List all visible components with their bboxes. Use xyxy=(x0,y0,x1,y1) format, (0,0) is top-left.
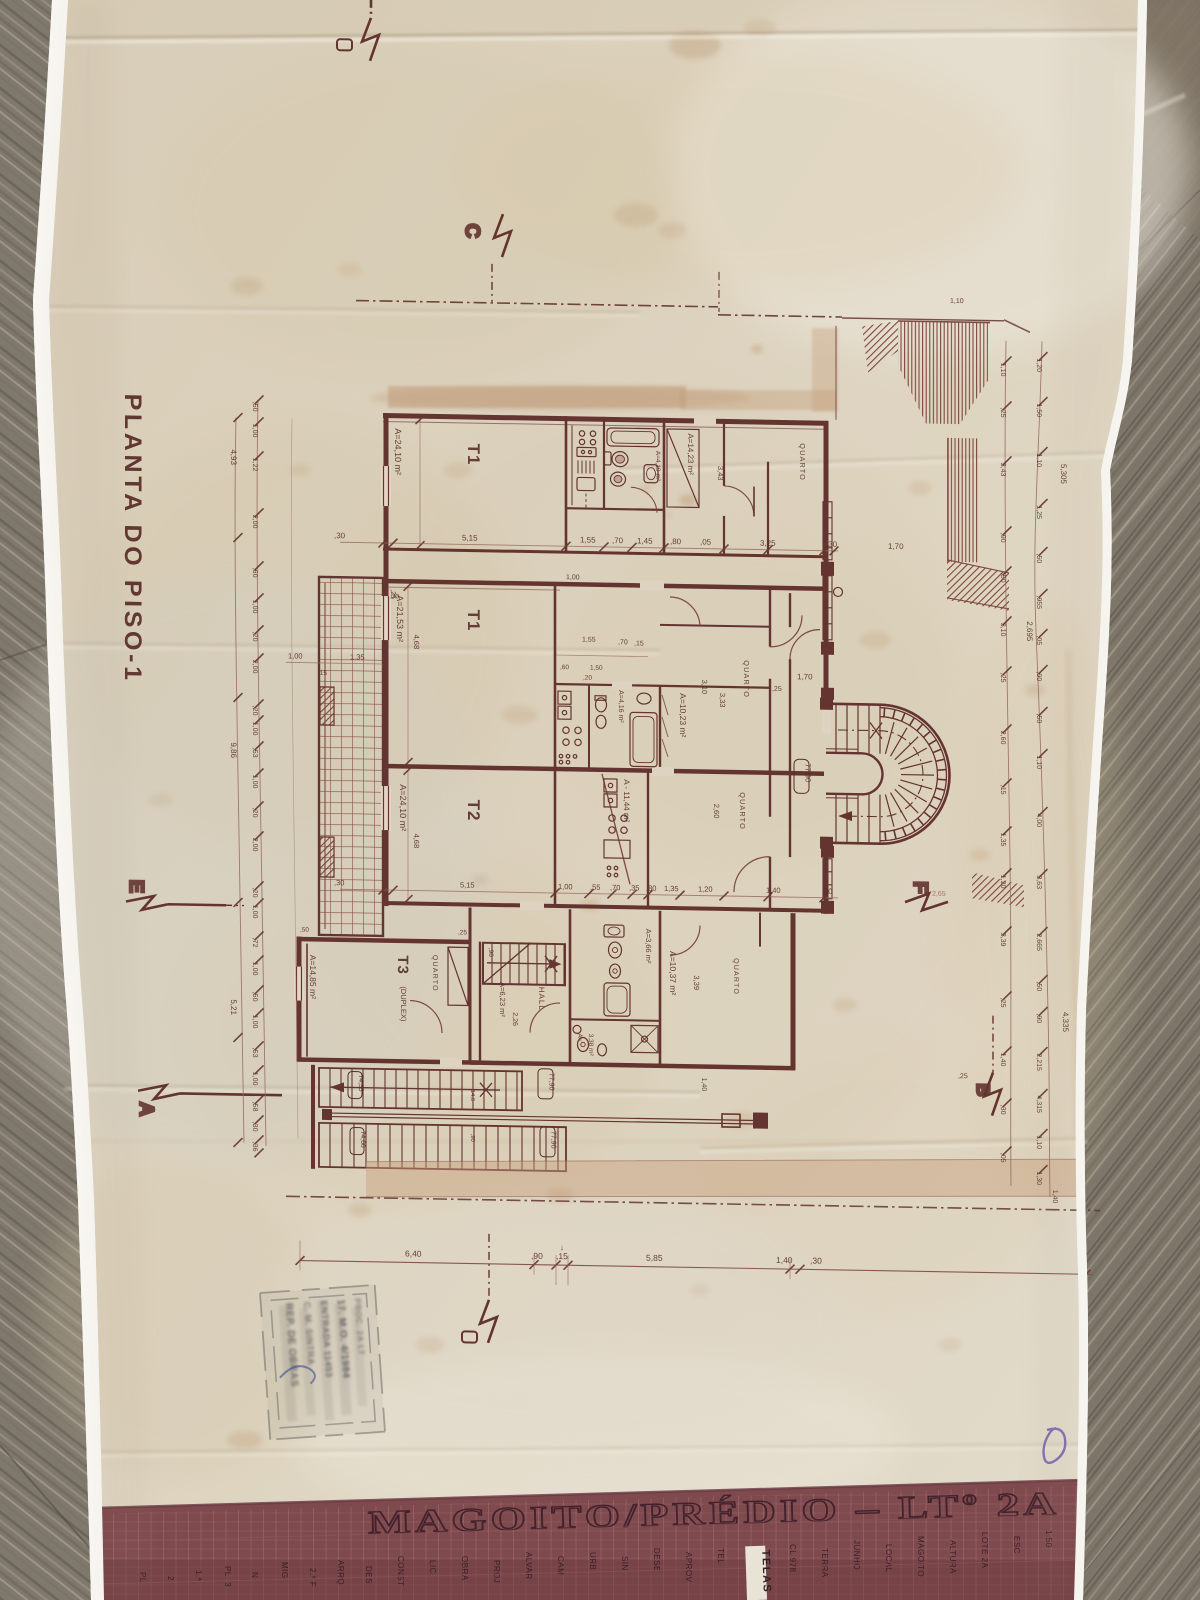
svg-text:4,68: 4,68 xyxy=(412,834,421,849)
svg-text:1,40: 1,40 xyxy=(700,1078,707,1092)
svg-text:QUARTO: QUARTO xyxy=(732,958,739,995)
svg-text:ALVAR: ALVAR xyxy=(524,1552,533,1580)
svg-text:A=14,23 m²: A=14,23 m² xyxy=(686,433,695,475)
svg-text:1,10: 1,10 xyxy=(950,298,964,305)
svg-text:CL 978: CL 978 xyxy=(788,1544,797,1573)
svg-text:1,00: 1,00 xyxy=(288,651,303,660)
svg-text:APROV: APROV xyxy=(684,1552,693,1583)
svg-text:A - 11,44 m²: A - 11,44 m² xyxy=(622,779,631,822)
svg-text:HALL: HALL xyxy=(537,987,546,1011)
svg-text:1,00: 1,00 xyxy=(251,775,258,789)
svg-text:,25: ,25 xyxy=(772,686,782,693)
svg-text:,35: ,35 xyxy=(629,883,639,892)
svg-text:,55: ,55 xyxy=(590,883,600,892)
svg-text:1,20: 1,20 xyxy=(1035,358,1042,372)
svg-text:,30: ,30 xyxy=(334,878,344,887)
svg-text:,53: ,53 xyxy=(251,748,258,758)
svg-text:,80: ,80 xyxy=(646,884,656,893)
svg-text:T1: T1 xyxy=(464,443,483,465)
svg-text:CONST: CONST xyxy=(396,1556,405,1587)
svg-text:2,00: 2,00 xyxy=(251,660,258,674)
svg-text:1,10: 1,10 xyxy=(1035,453,1042,467)
svg-text:TELAS: TELAS xyxy=(759,1549,773,1593)
svg-text:2,00: 2,00 xyxy=(251,838,258,852)
svg-text:A=24,10 m²: A=24,10 m² xyxy=(398,784,408,831)
svg-text:,30: ,30 xyxy=(999,1105,1006,1115)
svg-text:,70: ,70 xyxy=(618,639,628,646)
svg-text:14,6: 14,6 xyxy=(469,1090,475,1102)
svg-text:A=24,10 m²: A=24,10 m² xyxy=(393,428,403,475)
svg-text:2,65: 2,65 xyxy=(932,891,946,898)
svg-text:3,25: 3,25 xyxy=(760,539,776,548)
svg-text:LOCAL: LOCAL xyxy=(884,1544,893,1573)
svg-text:3,10: 3,10 xyxy=(999,623,1006,637)
svg-text:(DUPLEX): (DUPLEX) xyxy=(399,986,408,1022)
svg-text:A=6,23 m²: A=6,23 m² xyxy=(498,982,507,1017)
svg-text:2,00: 2,00 xyxy=(251,515,258,529)
svg-text:77,90: 77,90 xyxy=(550,1131,557,1149)
svg-text:DESE: DESE xyxy=(652,1548,661,1572)
svg-text:,30: ,30 xyxy=(826,540,838,549)
svg-text:QUARTO: QUARTO xyxy=(798,443,807,481)
svg-text:1,00: 1,00 xyxy=(251,1072,258,1086)
svg-text:,15: ,15 xyxy=(999,785,1006,795)
svg-text:1,70: 1,70 xyxy=(888,542,904,551)
svg-text:MIG: MIG xyxy=(280,1562,289,1579)
svg-text:2,665: 2,665 xyxy=(1035,933,1042,951)
svg-text:1,22: 1,22 xyxy=(251,458,258,472)
svg-text:DES: DES xyxy=(364,1566,373,1584)
svg-text:1,00: 1,00 xyxy=(566,574,580,581)
svg-text:4,93: 4,93 xyxy=(229,449,238,465)
svg-text:1,35: 1,35 xyxy=(999,833,1006,847)
svg-text:ALTURA: ALTURA xyxy=(948,1540,957,1574)
svg-text:A=10,23 m²: A=10,23 m² xyxy=(678,693,688,738)
svg-text:3,43: 3,43 xyxy=(999,463,1006,477)
svg-text:,30: ,30 xyxy=(822,887,832,896)
svg-text:,30: ,30 xyxy=(810,1255,822,1265)
svg-text:1,40: 1,40 xyxy=(766,886,781,895)
svg-text:1,00: 1,00 xyxy=(251,905,258,919)
svg-text:ESC: ESC xyxy=(1012,1536,1021,1554)
svg-text:,25: ,25 xyxy=(458,929,467,936)
svg-text:,50: ,50 xyxy=(1035,553,1042,563)
svg-text:,15: ,15 xyxy=(318,670,327,677)
svg-text:PL. 3: PL. 3 xyxy=(223,1566,232,1587)
svg-text:2,695: 2,695 xyxy=(1025,621,1034,642)
svg-text:A=21,53 m²: A=21,53 m² xyxy=(395,595,405,642)
svg-text:,50: ,50 xyxy=(999,573,1006,583)
svg-text:A=4,16 m²: A=4,16 m² xyxy=(617,690,624,723)
svg-text:1,45: 1,45 xyxy=(637,536,653,545)
svg-text:,60: ,60 xyxy=(560,664,569,671)
svg-text:MAGOITO: MAGOITO xyxy=(916,1536,925,1577)
svg-text:ARRQ: ARRQ xyxy=(336,1560,345,1585)
svg-text:,15: ,15 xyxy=(634,640,644,647)
svg-text:,90: ,90 xyxy=(487,948,494,958)
svg-text:1,55: 1,55 xyxy=(580,535,596,544)
svg-text:3,63: 3,63 xyxy=(1035,875,1042,889)
svg-text:1,50: 1,50 xyxy=(1035,403,1042,417)
svg-text:2.ª F: 2.ª F xyxy=(308,1568,317,1587)
svg-text:2: 2 xyxy=(166,1576,175,1581)
svg-text:1,00: 1,00 xyxy=(251,600,258,614)
svg-text:T2: T2 xyxy=(464,799,483,821)
svg-text:2,60: 2,60 xyxy=(999,731,1006,745)
svg-text:3,38 m²: 3,38 m² xyxy=(587,1034,594,1057)
svg-text:1,20: 1,20 xyxy=(999,875,1006,889)
svg-text:,50: ,50 xyxy=(1035,713,1042,723)
svg-text:,05: ,05 xyxy=(1035,635,1042,645)
svg-text:,05: ,05 xyxy=(999,1153,1006,1163)
svg-text:TERRA: TERRA xyxy=(820,1548,829,1578)
svg-text:,20: ,20 xyxy=(583,674,592,681)
svg-text:,20: ,20 xyxy=(251,632,258,642)
svg-text:T3: T3 xyxy=(394,955,411,975)
svg-text:1.ª: 1.ª xyxy=(194,1570,203,1581)
svg-text:LIC: LIC xyxy=(428,1560,437,1574)
svg-text:4,68: 4,68 xyxy=(412,635,421,650)
svg-text:,30: ,30 xyxy=(251,1122,258,1132)
svg-text:,30: ,30 xyxy=(334,531,346,540)
svg-text:,70: ,70 xyxy=(612,536,624,545)
svg-text:9,86: 9,86 xyxy=(229,742,238,758)
svg-text:,20: ,20 xyxy=(251,706,258,716)
svg-text:1,20: 1,20 xyxy=(698,884,713,893)
svg-text:PROJ: PROJ xyxy=(492,1560,501,1583)
svg-text:OBRA: OBRA xyxy=(460,1556,469,1581)
svg-text:,15: ,15 xyxy=(556,1251,568,1261)
svg-text:,53: ,53 xyxy=(251,1048,258,1058)
svg-text:,50: ,50 xyxy=(251,992,258,1002)
svg-text:,80: ,80 xyxy=(670,537,682,546)
svg-text:,25: ,25 xyxy=(999,673,1006,683)
svg-text:5,15: 5,15 xyxy=(460,880,475,889)
svg-text:,58: ,58 xyxy=(251,1102,258,1112)
svg-text:A=4,19 m²: A=4,19 m² xyxy=(654,451,661,482)
svg-text:74,66: 74,66 xyxy=(359,1131,366,1148)
svg-text:,25: ,25 xyxy=(958,1073,968,1080)
svg-text:1,10: 1,10 xyxy=(999,363,1006,377)
svg-text:1,00: 1,00 xyxy=(251,1015,258,1029)
svg-text:1,40: 1,40 xyxy=(999,1053,1006,1067)
svg-text:1,00: 1,00 xyxy=(251,962,258,976)
svg-text:↓: ↓ xyxy=(560,1243,564,1252)
svg-text:2,26: 2,26 xyxy=(511,1012,518,1026)
svg-text:6,40: 6,40 xyxy=(405,1248,422,1258)
svg-text:A=: A= xyxy=(576,1033,583,1041)
svg-text:,90: ,90 xyxy=(469,1134,475,1143)
svg-text:QUARTO: QUARTO xyxy=(431,955,438,992)
svg-text:3,10: 3,10 xyxy=(700,680,709,695)
svg-text:B: B xyxy=(973,1083,993,1096)
svg-text:1,25: 1,25 xyxy=(1035,505,1042,519)
svg-text:77,90: 77,90 xyxy=(548,1073,555,1091)
svg-text:,90: ,90 xyxy=(999,533,1006,543)
svg-text:74,55: 74,55 xyxy=(357,1075,364,1092)
svg-text:,50: ,50 xyxy=(300,927,309,934)
svg-text:1,70: 1,70 xyxy=(797,672,813,681)
svg-text:3,39: 3,39 xyxy=(999,933,1006,947)
svg-text:QUARTO: QUARTO xyxy=(738,792,747,830)
svg-text:5,85: 5,85 xyxy=(646,1253,663,1263)
svg-text:,25: ,25 xyxy=(389,589,396,599)
svg-text:1,50: 1,50 xyxy=(590,665,603,672)
svg-text:77,90: 77,90 xyxy=(804,763,813,782)
svg-text:,05: ,05 xyxy=(700,538,712,547)
svg-text:1,35: 1,35 xyxy=(350,652,365,661)
svg-text:1,35: 1,35 xyxy=(664,884,679,893)
svg-text:A=10,37 m²: A=10,37 m² xyxy=(668,951,678,996)
svg-text:,90: ,90 xyxy=(1035,671,1042,681)
svg-text:3,43: 3,43 xyxy=(716,466,725,481)
svg-text:5,21: 5,21 xyxy=(229,999,238,1015)
svg-text:A=14,85 m²: A=14,85 m² xyxy=(308,955,318,1000)
svg-text:,25: ,25 xyxy=(999,408,1006,418)
svg-text:,36: ,36 xyxy=(251,1142,258,1152)
svg-text:5,15: 5,15 xyxy=(462,533,478,542)
svg-text:A=3,66 m²: A=3,66 m² xyxy=(644,929,653,964)
svg-text:1,55: 1,55 xyxy=(582,636,596,643)
svg-text:,70: ,70 xyxy=(610,883,620,892)
svg-text:T1: T1 xyxy=(464,609,483,631)
svg-text:,72: ,72 xyxy=(251,938,258,948)
svg-text:1,10: 1,10 xyxy=(1035,755,1042,769)
svg-text:,60: ,60 xyxy=(251,568,258,578)
svg-text:,955: ,955 xyxy=(1035,595,1042,609)
svg-text:,25: ,25 xyxy=(999,998,1006,1008)
svg-text:1,00: 1,00 xyxy=(251,424,258,438)
svg-text:SIN: SIN xyxy=(620,1556,629,1571)
svg-text:,90: ,90 xyxy=(531,1251,543,1261)
svg-text:URB: URB xyxy=(588,1552,597,1570)
svg-text:3,39: 3,39 xyxy=(692,975,701,990)
svg-text:TEL: TEL xyxy=(716,1548,725,1564)
svg-text:F: F xyxy=(909,881,931,894)
svg-text:,50: ,50 xyxy=(251,402,258,412)
svg-text:QUARTO: QUARTO xyxy=(742,660,751,698)
svg-text:3,33: 3,33 xyxy=(718,693,727,708)
svg-text:LOTE 2A: LOTE 2A xyxy=(980,1532,989,1569)
svg-text:2,60: 2,60 xyxy=(712,804,721,819)
svg-text:4,00: 4,00 xyxy=(1035,813,1042,827)
svg-text:,20: ,20 xyxy=(251,808,258,818)
svg-text:1,00: 1,00 xyxy=(558,882,573,891)
svg-text:N: N xyxy=(250,1572,259,1578)
svg-text:C: C xyxy=(461,223,483,238)
svg-text:,20: ,20 xyxy=(251,888,258,898)
svg-text:1,00: 1,00 xyxy=(251,722,258,736)
